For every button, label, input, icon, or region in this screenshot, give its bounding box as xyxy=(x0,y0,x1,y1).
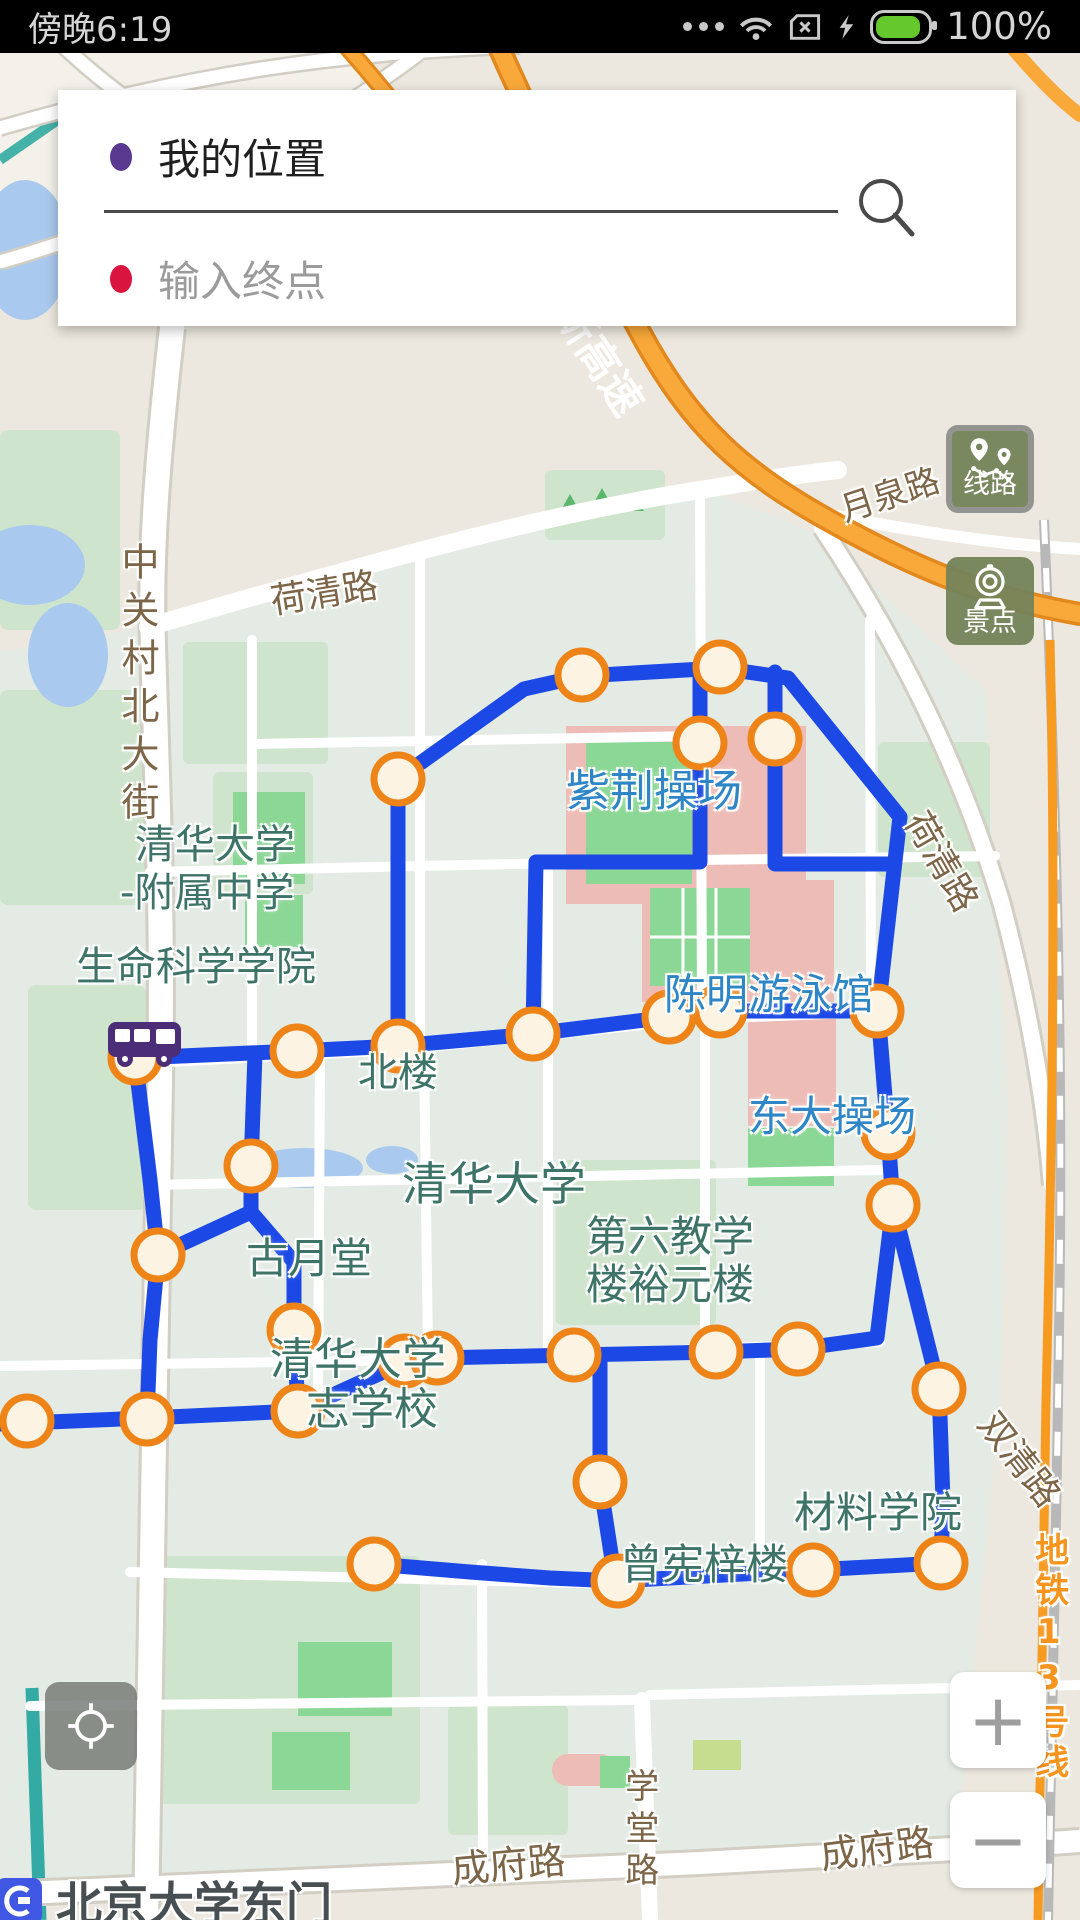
routes-button-label: 线路 xyxy=(963,462,1017,501)
signal-dots-icon xyxy=(683,22,724,31)
bus-stop-marker[interactable] xyxy=(134,1231,182,1279)
scenic-spots-button-label: 景点 xyxy=(963,600,1017,639)
bus-stop-marker[interactable] xyxy=(274,1387,322,1435)
metro-station-label[interactable]: 北京大学东门 xyxy=(0,1868,332,1920)
zoom-out-button[interactable]: − xyxy=(950,1792,1046,1888)
bus-stop-marker[interactable] xyxy=(917,1539,965,1587)
zoom-in-button[interactable]: + xyxy=(950,1672,1046,1768)
minus-icon: − xyxy=(968,1804,1028,1876)
route-search-card: 我的位置 输入终点 xyxy=(58,90,1016,326)
bus-stop-marker[interactable] xyxy=(869,1181,917,1229)
bus-stop-marker[interactable] xyxy=(692,1328,740,1376)
destination-input[interactable]: 输入终点 xyxy=(158,248,326,309)
bus-stop-marker[interactable] xyxy=(550,1331,598,1379)
bus-stop-marker[interactable] xyxy=(227,1142,275,1190)
bus-stop-marker[interactable] xyxy=(413,1334,461,1382)
flash-icon xyxy=(836,12,856,42)
destination-row[interactable]: 输入终点 xyxy=(58,248,326,309)
search-divider xyxy=(104,210,838,213)
locate-button[interactable] xyxy=(45,1682,137,1770)
bus-stop-marker[interactable] xyxy=(350,1540,398,1588)
bus-stop-marker[interactable] xyxy=(676,719,724,767)
search-icon xyxy=(854,174,920,240)
origin-input[interactable]: 我的位置 xyxy=(158,126,326,187)
bus-stop-marker[interactable] xyxy=(123,1395,171,1443)
bus-stop-marker[interactable] xyxy=(273,1027,321,1075)
bus-stop-marker[interactable] xyxy=(270,1306,318,1354)
bus-stop-marker[interactable] xyxy=(509,1010,557,1058)
origin-dot-icon xyxy=(110,143,132,171)
bus-stop-marker[interactable] xyxy=(774,1325,822,1373)
bus-stop-marker[interactable] xyxy=(915,1365,963,1413)
bus-marker[interactable] xyxy=(106,1018,184,1072)
bus-icon xyxy=(106,1018,184,1068)
bus-stop-marker[interactable] xyxy=(576,1458,624,1506)
status-icons: 100% xyxy=(683,5,1070,48)
search-button[interactable] xyxy=(854,174,920,240)
bus-stop-marker[interactable] xyxy=(751,715,799,763)
app-screen: 京新高速月泉路荷清路中关村北大街荷清路双清路地铁13号线学堂路成府路成府路清华大… xyxy=(0,0,1080,1920)
bus-stop-marker[interactable] xyxy=(645,993,693,1041)
battery-percent: 100% xyxy=(946,5,1052,48)
origin-row[interactable]: 我的位置 xyxy=(58,126,326,187)
scenic-spots-button[interactable]: 景点 xyxy=(946,557,1034,645)
routes-button[interactable]: 线路 xyxy=(946,425,1034,513)
bus-stop-marker[interactable] xyxy=(374,755,422,803)
station-name: 北京大学东门 xyxy=(56,1868,332,1920)
bus-stop-marker[interactable] xyxy=(374,1022,422,1070)
wifi-icon xyxy=(738,13,774,41)
bus-stop-marker[interactable] xyxy=(558,651,606,699)
destination-dot-icon xyxy=(110,265,132,293)
status-bar: 傍晚6:19 100% xyxy=(0,0,1080,53)
subway-logo-icon xyxy=(0,1878,42,1920)
bus-stop-marker[interactable] xyxy=(696,643,744,691)
bus-stop-marker[interactable] xyxy=(864,1109,912,1157)
sim-card-icon xyxy=(788,13,822,41)
bus-stop-marker[interactable] xyxy=(3,1397,51,1445)
bus-stop-marker[interactable] xyxy=(789,1546,837,1594)
bus-stop-marker[interactable] xyxy=(853,987,901,1035)
bus-stop-marker[interactable] xyxy=(696,987,744,1035)
battery-icon xyxy=(870,10,932,44)
crosshair-icon xyxy=(65,1700,117,1752)
status-time: 傍晚6:19 xyxy=(28,2,172,51)
plus-icon: + xyxy=(968,1684,1028,1756)
bus-stop-marker[interactable] xyxy=(594,1557,642,1605)
